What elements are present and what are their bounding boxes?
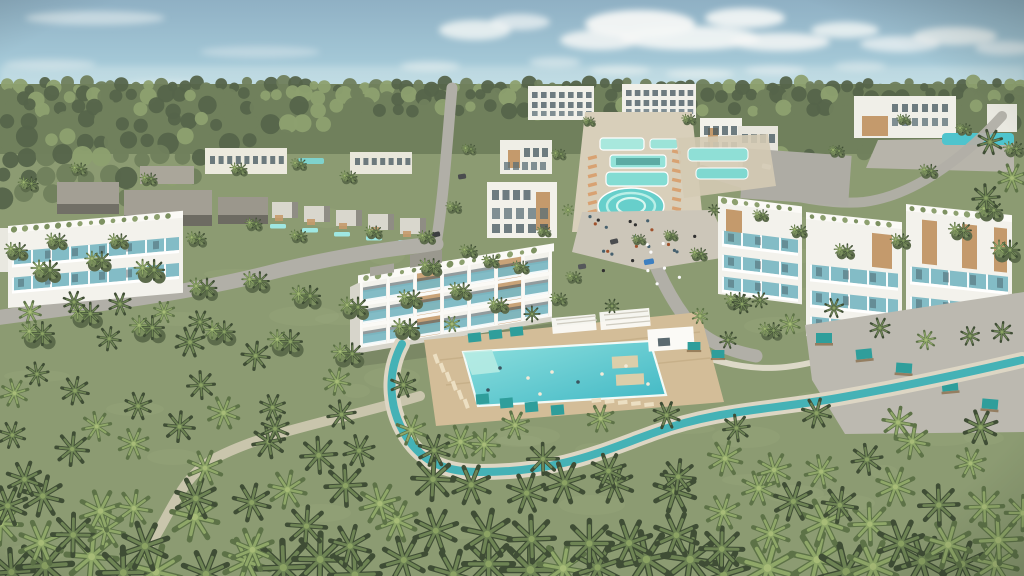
vignette xyxy=(0,0,1024,576)
resort-aerial-render xyxy=(0,0,1024,576)
render-stage xyxy=(0,0,1024,576)
